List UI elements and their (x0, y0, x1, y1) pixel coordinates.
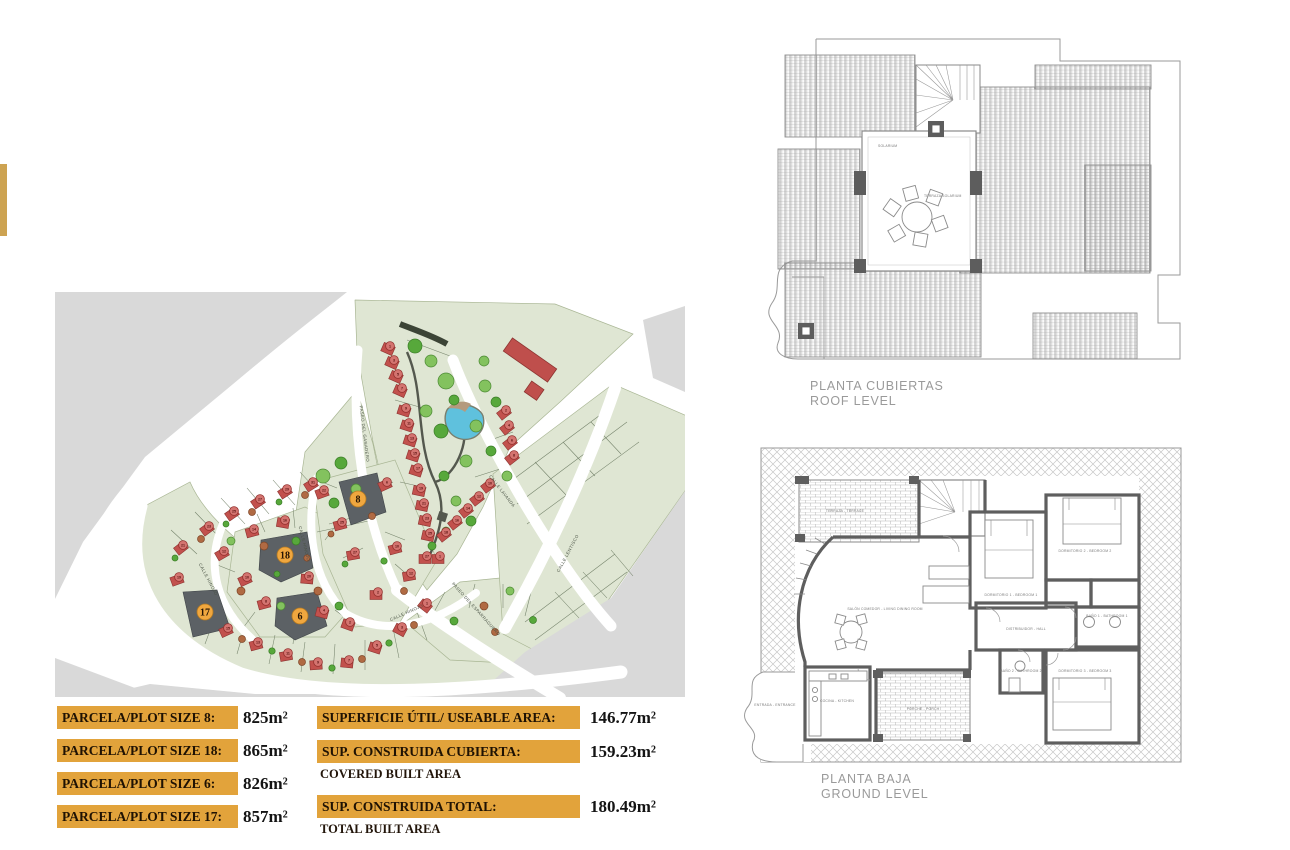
plot-number: 1 (426, 601, 428, 605)
left-accent-bar (0, 164, 7, 236)
tree-icon (466, 516, 476, 526)
tree-icon (335, 457, 347, 469)
tree-icon (491, 397, 501, 407)
tree-icon (329, 498, 339, 508)
hall-label: DISTRIBUIDOR - HALL (1006, 627, 1046, 631)
plot-number: 5 (376, 643, 378, 647)
plot-number: 2 (377, 590, 379, 594)
area-row-label: SUP. CONSTRUIDA CUBIERTA: (317, 740, 580, 763)
living-label: SALÓN COMEDOR - LIVING DINING ROOM (847, 606, 922, 611)
plot-size-row-value: 825m² (243, 708, 288, 728)
tree-icon (479, 380, 491, 392)
plot-number: 1 (439, 554, 441, 558)
plot-number: 13 (410, 436, 414, 440)
plot-number: 8 (265, 599, 267, 603)
tree-icon (249, 509, 256, 516)
plot-number: 25 (340, 520, 344, 524)
kitchen-label: COCINA - KITCHEN (820, 699, 854, 703)
tree-icon (329, 665, 335, 671)
plot-number: 20 (307, 574, 311, 578)
tree-icon (328, 531, 334, 537)
tree-icon (359, 656, 366, 663)
plot-size-row-label: PARCELA/PLOT SIZE 17: (57, 805, 238, 828)
plot-number: 12 (477, 494, 481, 498)
tree-icon (439, 471, 449, 481)
tree-icon (302, 492, 309, 499)
plot-number: 16 (455, 518, 459, 522)
plot-number: 27 (258, 497, 262, 501)
tree-icon (420, 405, 432, 417)
tree-icon (451, 496, 461, 506)
tree-icon (342, 561, 348, 567)
bath2-label: BAÑO 2 - BATHROOM 2 (1000, 668, 1041, 673)
tree-icon (479, 356, 489, 366)
plot-size-row-label: PARCELA/PLOT SIZE 6: (57, 772, 238, 795)
plot-number: 2 (505, 408, 507, 412)
highlighted-plot-number: 18 (280, 550, 290, 561)
plot-number: 6 (511, 438, 513, 442)
tree-icon (276, 499, 282, 505)
area-row-value: 146.77m² (590, 708, 656, 728)
tree-icon (460, 455, 472, 467)
tree-icon (450, 617, 458, 625)
plot-number: 27 (425, 554, 429, 558)
plot-number: 12 (222, 549, 226, 553)
tree-icon (530, 617, 537, 624)
tree-icon (198, 536, 205, 543)
area-row-sublabel: COVERED BUILT AREA (320, 767, 461, 782)
tree-icon (425, 355, 437, 367)
highlighted-plot-number: 6 (298, 611, 303, 622)
plot-number: 15 (413, 451, 417, 455)
plot-number: 5 (397, 372, 399, 376)
tree-icon (335, 602, 343, 610)
site-plan-map: 1357911131517192123252468101214161827131… (55, 292, 685, 697)
tree-icon (369, 513, 376, 520)
plot-number: 31 (311, 480, 315, 484)
tree-icon (381, 558, 387, 564)
plot-number: 12 (409, 571, 413, 575)
bed3-label: DORMITORIO 3 - BEDROOM 3 (1059, 669, 1112, 673)
plot-number: 16 (283, 518, 287, 522)
plot-number: 10 (245, 575, 249, 579)
tree-icon (260, 542, 268, 550)
plot-number: 9 (405, 406, 407, 410)
plot-number: 7 (348, 658, 350, 662)
tree-icon (314, 587, 322, 595)
tree-icon (428, 542, 436, 550)
plot-number: 14 (466, 506, 470, 510)
plot-number: 4 (323, 608, 325, 612)
tree-icon (408, 339, 422, 353)
porch-label: PORCHE - PORCH (907, 707, 940, 711)
plot-number: 19 (419, 486, 423, 490)
plot-size-row-value: 857m² (243, 807, 288, 827)
tree-icon (277, 602, 285, 610)
tree-icon (299, 659, 306, 666)
tree-icon (401, 588, 408, 595)
plot-number: 4 (508, 423, 510, 427)
bed1-label: DORMITORIO 1 - BEDROOM 1 (985, 593, 1038, 597)
tree-icon (172, 555, 178, 561)
bed2-label: DORMITORIO 2 - BEDROOM 2 (1059, 549, 1112, 553)
plot-size-row-value: 865m² (243, 741, 288, 761)
ground-plan: TERRAZA - TERRACE SALÓN COMEDOR - LIVING… (733, 440, 1198, 770)
tree-icon (274, 571, 280, 577)
terrace-label: TERRAZA - TERRACE (826, 509, 865, 513)
tree-icon (386, 640, 392, 646)
tree-icon (449, 395, 459, 405)
tree-icon (227, 537, 235, 545)
plot-number: 7 (401, 386, 403, 390)
plot-number: 21 (181, 543, 185, 547)
plot-number: 25 (232, 509, 236, 513)
area-row-label: SUPERFICIE ÚTIL/ USEABLE AREA: (317, 706, 580, 729)
plot-size-row-value: 826m² (243, 774, 288, 794)
roof-plan-title: PLANTA CUBIERTAS ROOF LEVEL (810, 379, 944, 409)
tree-icon (292, 537, 300, 545)
terraza-label: TERRAZA SOLARIUM (924, 194, 962, 198)
plot-number: 17 (416, 466, 420, 470)
tree-icon (506, 587, 514, 595)
area-row-value: 180.49m² (590, 797, 656, 817)
plot-number: 11 (286, 651, 290, 655)
solarium-label: SOLARIUM (878, 144, 897, 148)
plot-number: 2 (349, 620, 351, 624)
ground-plan-title: PLANTA BAJA GROUND LEVEL (821, 772, 929, 802)
tree-icon (411, 622, 418, 629)
area-row-value: 159.23m² (590, 742, 656, 762)
plot-number: 10 (395, 544, 399, 548)
plot-number: 25 (428, 531, 432, 535)
plot-number: 19 (177, 575, 181, 579)
plot-number: 1 (389, 344, 391, 348)
plot-number: 3 (393, 358, 395, 362)
plot-size-row-label: PARCELA/PLOT SIZE 18: (57, 739, 238, 762)
tree-icon (480, 602, 488, 610)
tree-icon (237, 587, 245, 595)
highlighted-plot-number: 8 (356, 494, 361, 505)
roof-plan: SOLARIUM TERRAZA SOLARIUM (728, 25, 1206, 377)
tree-icon (502, 471, 512, 481)
plot-number: 15 (226, 626, 230, 630)
plot-number: 3 (401, 625, 403, 629)
plot-number: 11 (407, 421, 411, 425)
plot-number: 23 (425, 516, 429, 520)
plot-number: 8 (513, 453, 515, 457)
bath1-label: BAÑO 1 - BATHROOM 1 (1086, 613, 1127, 618)
tree-icon (486, 446, 496, 456)
plot-number: 27 (353, 550, 357, 554)
plot-number: 23 (207, 524, 211, 528)
tree-icon (269, 648, 275, 654)
tree-icon (470, 420, 482, 432)
tree-icon (239, 636, 246, 643)
plot-number: 14 (252, 527, 256, 531)
plot-number: 6 (386, 480, 388, 484)
plot-number: 9 (317, 660, 319, 664)
highlighted-plot-number: 17 (200, 607, 210, 618)
entrance-label: ENTRADA - ENTRANCE (754, 703, 796, 707)
area-row-label: SUP. CONSTRUIDA TOTAL: (317, 795, 580, 818)
tree-icon (316, 469, 330, 483)
plot-number: 21 (422, 501, 426, 505)
plot-number: 13 (256, 640, 260, 644)
plot-number: 10 (488, 481, 492, 485)
tree-icon (434, 424, 448, 438)
tree-icon (223, 521, 229, 527)
plot-size-row-label: PARCELA/PLOT SIZE 8: (57, 706, 238, 729)
tree-icon (438, 373, 454, 389)
area-row-sublabel: TOTAL BUILT AREA (320, 822, 440, 837)
plot-number: 29 (285, 487, 289, 491)
plot-number: 18 (444, 530, 448, 534)
plot-number: 22 (322, 488, 326, 492)
brochure-page: 1357911131517192123252468101214161827131… (0, 0, 1290, 850)
